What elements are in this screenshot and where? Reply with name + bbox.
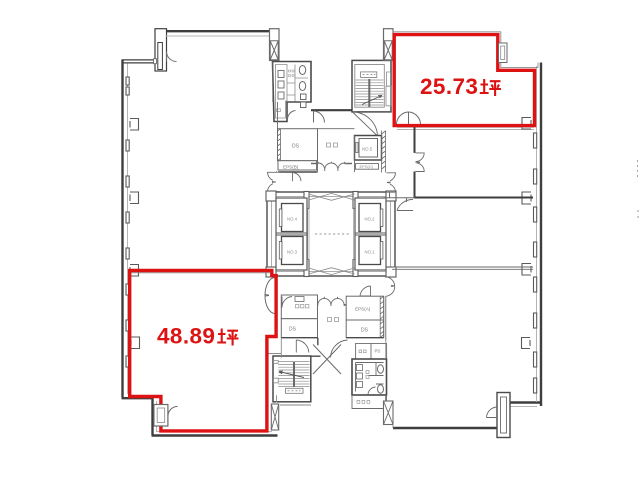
svg-text:EPS(A): EPS(A) xyxy=(355,307,371,312)
svg-text:PS: PS xyxy=(375,349,381,354)
svg-text:48.89: 48.89 xyxy=(157,324,215,349)
svg-text:NO.5: NO.5 xyxy=(362,147,373,152)
svg-text:EPS(C): EPS(C) xyxy=(360,164,374,169)
svg-text:NO.2: NO.2 xyxy=(365,217,376,222)
svg-text:DS: DS xyxy=(289,327,297,333)
svg-text:NO.4: NO.4 xyxy=(287,217,298,222)
svg-text:DS: DS xyxy=(292,144,300,150)
svg-text:NO.1: NO.1 xyxy=(365,250,376,255)
svg-text:EPS(B): EPS(B) xyxy=(283,164,299,169)
svg-text:25.73: 25.73 xyxy=(420,74,478,99)
svg-text:NO.3: NO.3 xyxy=(287,250,298,255)
svg-text:DS: DS xyxy=(361,328,369,334)
